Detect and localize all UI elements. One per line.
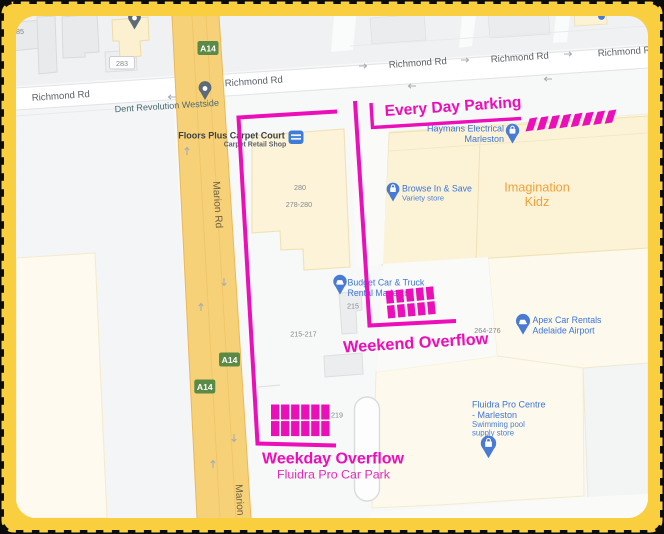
svg-text:219: 219 — [331, 411, 343, 420]
svg-text:280: 280 — [294, 183, 306, 192]
svg-text:supply store: supply store — [472, 429, 514, 438]
svg-text:Marleston: Marleston — [464, 134, 504, 144]
svg-text:- Marleston: - Marleston — [472, 410, 517, 420]
svg-text:Browse In & Save: Browse In & Save — [402, 184, 472, 194]
svg-text:Imagination: Imagination — [504, 181, 570, 195]
svg-text:215-217: 215-217 — [290, 330, 316, 339]
svg-text:Floors Plus Carpet Court: Floors Plus Carpet Court — [178, 131, 285, 141]
svg-text:A14: A14 — [222, 355, 238, 365]
svg-text:Budget Car & Truck: Budget Car & Truck — [348, 278, 425, 288]
svg-text:283: 283 — [116, 59, 128, 68]
svg-text:Rental Marleston: Rental Marleston — [348, 288, 415, 298]
svg-text:A14: A14 — [200, 43, 216, 53]
svg-text:Apex Car Rentals: Apex Car Rentals — [533, 315, 603, 325]
svg-text:Weekday Overflow: Weekday Overflow — [262, 451, 405, 468]
svg-text:Fluidra Pro Car Park: Fluidra Pro Car Park — [277, 468, 391, 482]
svg-text:Kidz: Kidz — [525, 195, 550, 209]
svg-text:Carpet Retail Shop: Carpet Retail Shop — [224, 142, 287, 149]
svg-text:Adelaide Airport: Adelaide Airport — [533, 326, 596, 336]
svg-text:215: 215 — [347, 302, 359, 311]
svg-text:278-280: 278-280 — [286, 200, 312, 209]
svg-text:A14: A14 — [197, 382, 213, 392]
svg-text:Fluidra Pro Centre: Fluidra Pro Centre — [472, 400, 546, 410]
svg-text:Variety store: Variety store — [402, 194, 444, 203]
